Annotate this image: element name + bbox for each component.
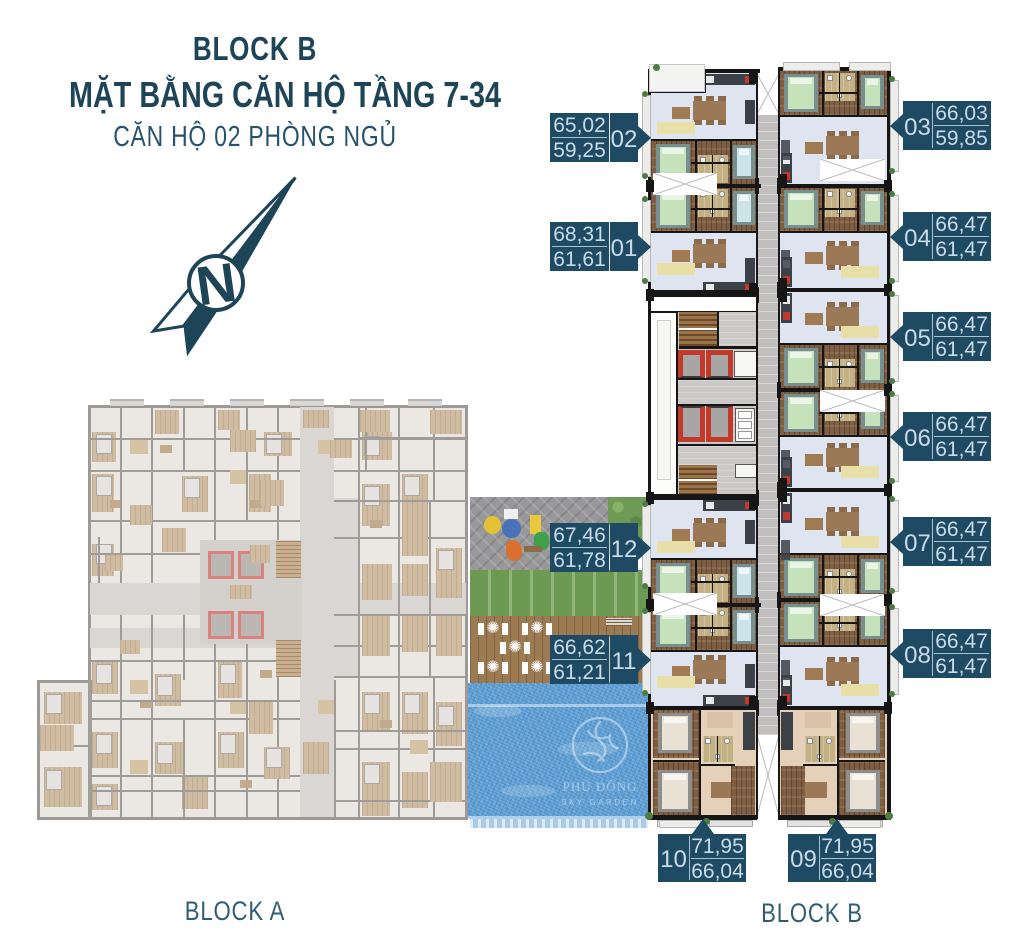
svg-text:PHỦ ĐÔNG: PHỦ ĐÔNG [563, 779, 638, 794]
svg-text:SKY GARDEN: SKY GARDEN [561, 798, 638, 807]
